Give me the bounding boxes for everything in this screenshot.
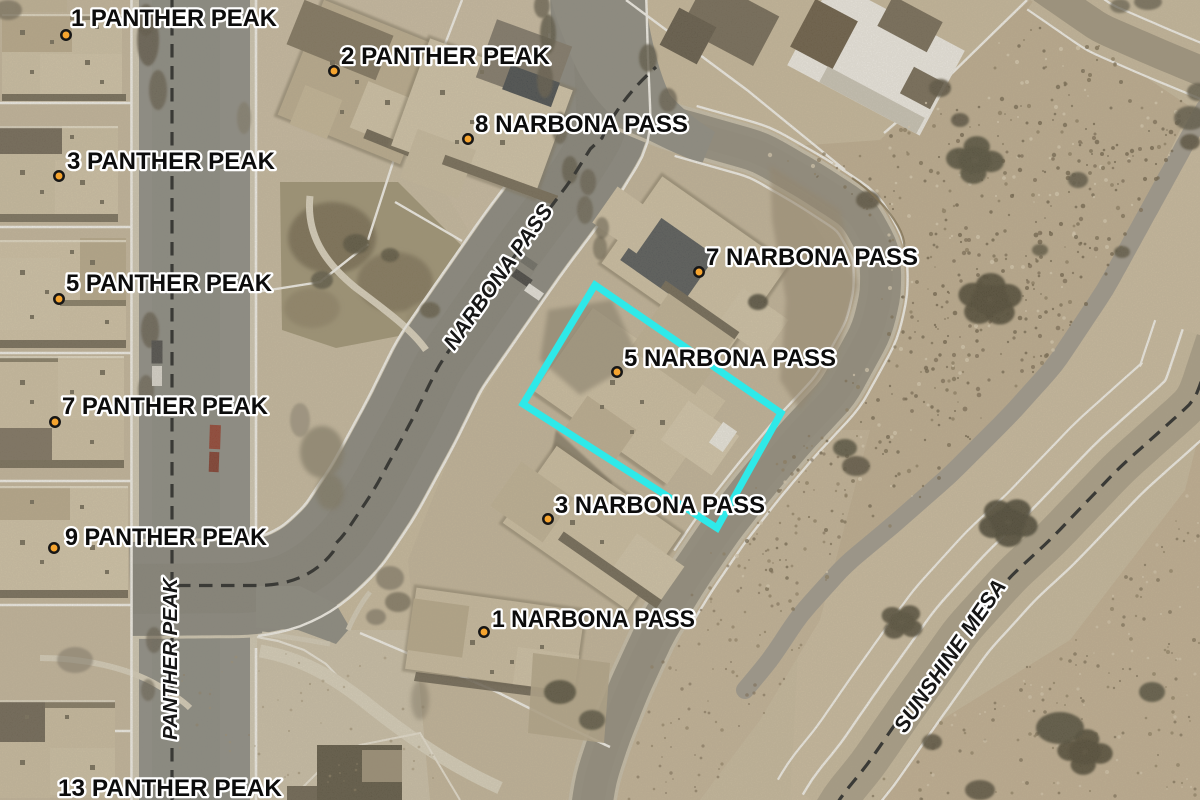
svg-text:13 PANTHER PEAK: 13 PANTHER PEAK: [58, 776, 282, 800]
svg-text:PANTHER PEAK: PANTHER PEAK: [159, 576, 182, 740]
svg-text:1 NARBONA PASS: 1 NARBONA PASS: [492, 607, 695, 633]
svg-text:2 PANTHER PEAK: 2 PANTHER PEAK: [341, 44, 550, 70]
svg-text:3 PANTHER PEAK: 3 PANTHER PEAK: [67, 149, 275, 175]
svg-text:8 NARBONA PASS: 8 NARBONA PASS: [475, 112, 688, 138]
svg-text:7 NARBONA PASS: 7 NARBONA PASS: [706, 245, 918, 271]
svg-text:7 PANTHER PEAK: 7 PANTHER PEAK: [62, 394, 268, 420]
svg-text:5 PANTHER PEAK: 5 PANTHER PEAK: [66, 271, 272, 297]
svg-text:5 NARBONA PASS: 5 NARBONA PASS: [624, 346, 836, 372]
svg-text:1 PANTHER PEAK: 1 PANTHER PEAK: [71, 6, 277, 32]
svg-text:3 NARBONA PASS: 3 NARBONA PASS: [555, 493, 765, 519]
svg-text:9 PANTHER PEAK: 9 PANTHER PEAK: [65, 525, 267, 551]
